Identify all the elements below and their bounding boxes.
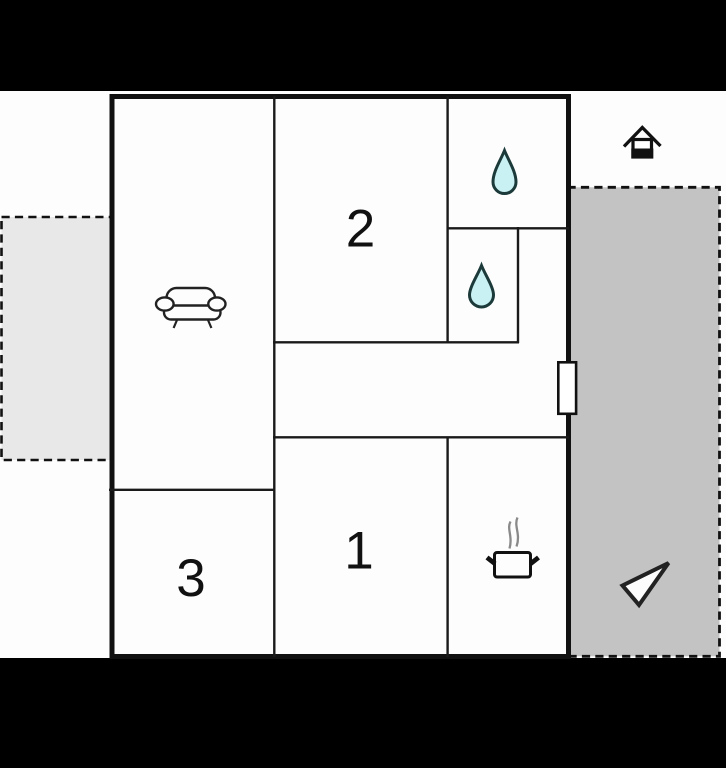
svg-text:1: 1 xyxy=(344,522,373,581)
svg-text:3: 3 xyxy=(176,549,205,608)
svg-text:2: 2 xyxy=(346,200,375,259)
